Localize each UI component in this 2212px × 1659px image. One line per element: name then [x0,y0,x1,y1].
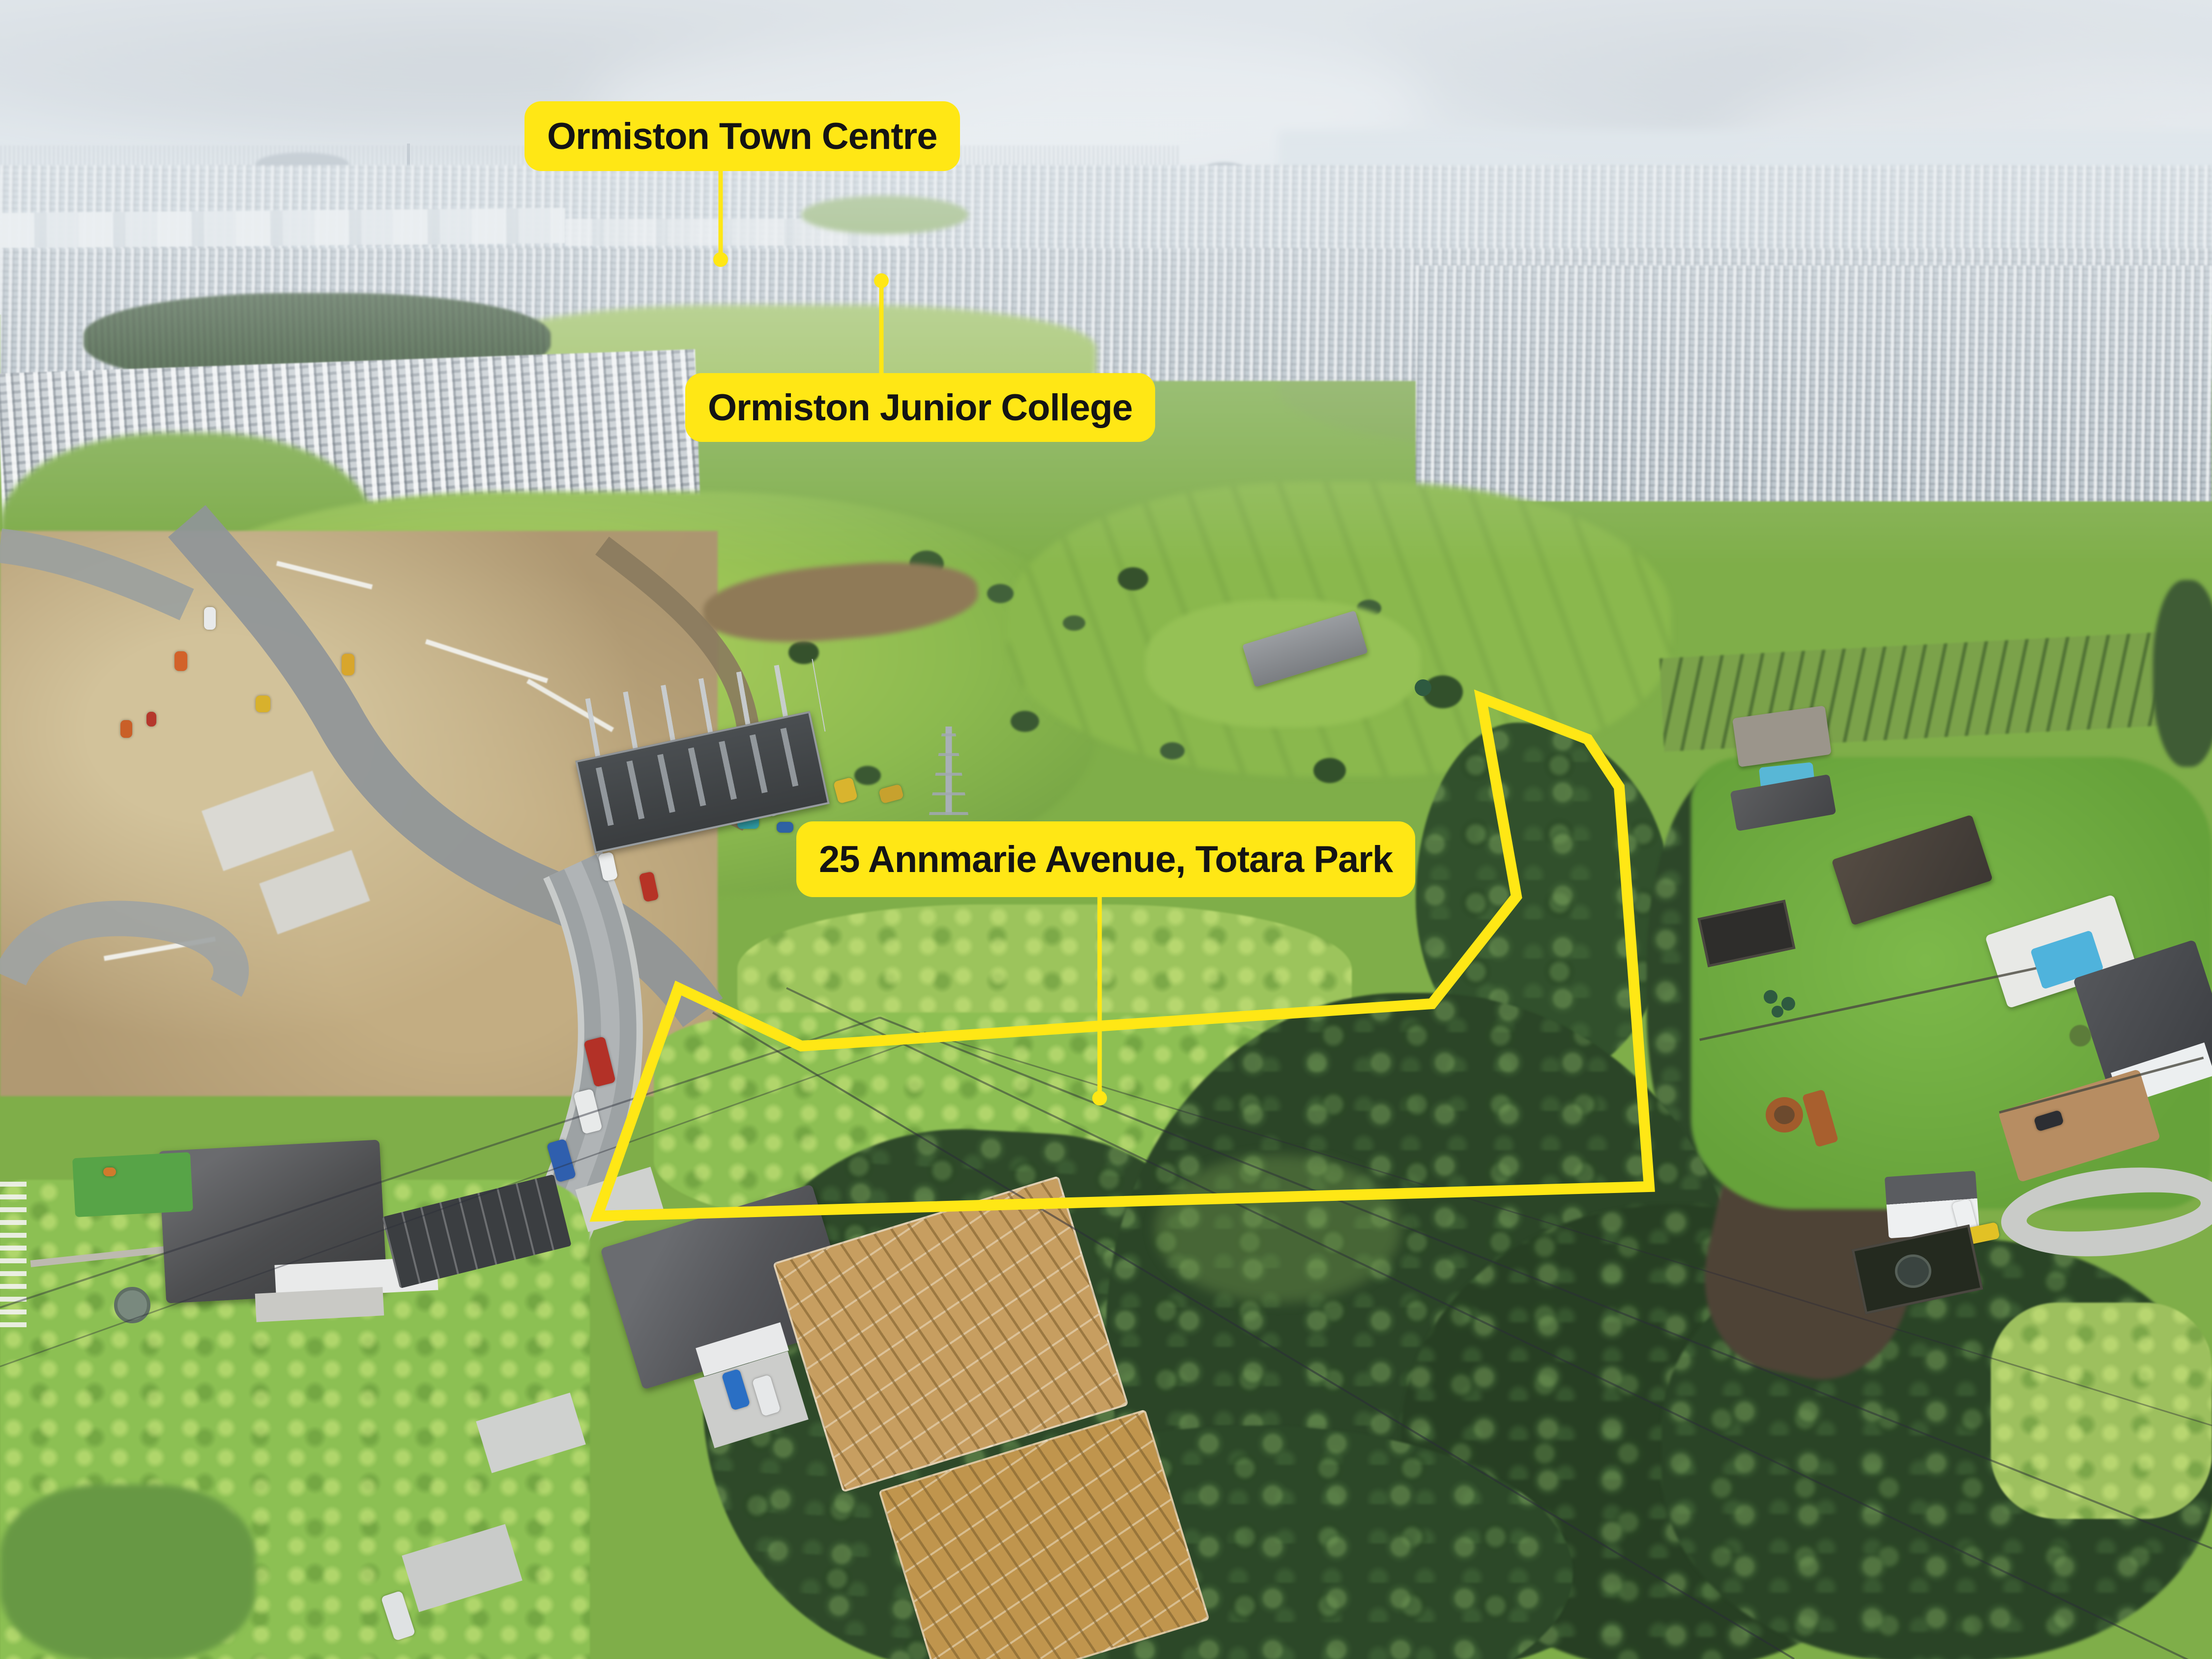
label-town-centre: Ormiston Town Centre [524,101,960,171]
label-property-address: 25 Annmarie Avenue, Totara Park [796,821,1415,897]
aerial-photo: Ormiston Town Centre Ormiston Junior Col… [0,0,2212,1659]
leader-dot-junior-college [874,273,889,288]
leader-dot-town-centre [713,252,728,267]
property-boundary-outline [597,698,1649,1216]
leader-dot-property [1092,1091,1107,1106]
label-junior-college: Ormiston Junior College [685,373,1155,442]
